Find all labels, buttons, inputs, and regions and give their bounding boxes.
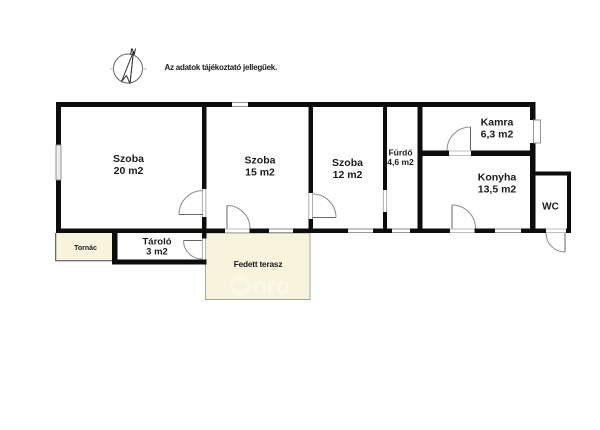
svg-text:6,3 m2: 6,3 m2 — [481, 129, 514, 141]
svg-text:20 m2: 20 m2 — [114, 165, 144, 177]
svg-text:Az adatok tájékoztató jellegűe: Az adatok tájékoztató jellegűek. — [165, 63, 278, 72]
svg-text:15 m2: 15 m2 — [245, 167, 275, 179]
svg-text:Szoba: Szoba — [332, 157, 363, 169]
svg-text:Szoba: Szoba — [113, 153, 144, 165]
svg-text:3 m2: 3 m2 — [146, 247, 168, 258]
svg-text:13,5 m2: 13,5 m2 — [478, 184, 517, 196]
svg-text:Kamra: Kamra — [481, 117, 514, 129]
svg-text:12 m2: 12 m2 — [333, 169, 363, 181]
svg-text:Fedett terasz: Fedett terasz — [234, 259, 283, 269]
svg-text:WC: WC — [542, 202, 559, 213]
svg-text:4,6 m2: 4,6 m2 — [387, 157, 414, 167]
svg-text:Szoba: Szoba — [245, 155, 276, 167]
svg-text:Konyha: Konyha — [478, 172, 517, 184]
svg-text:oro: oro — [253, 273, 290, 299]
svg-text:N: N — [130, 48, 136, 57]
svg-text:Tornác: Tornác — [74, 245, 97, 252]
